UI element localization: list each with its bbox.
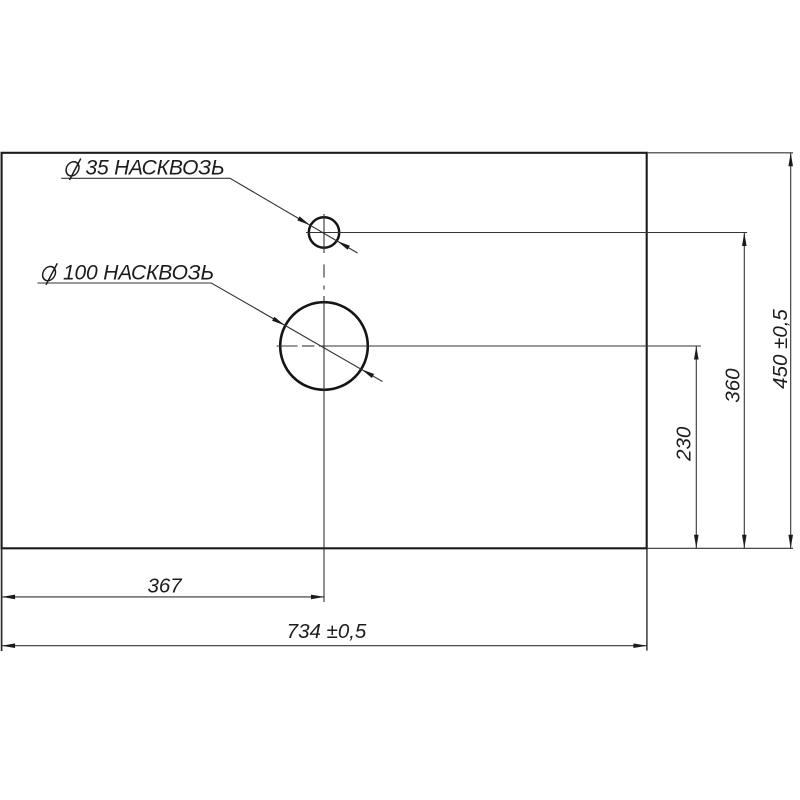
svg-text:35 НАСКВОЗЬ: 35 НАСКВОЗЬ: [86, 157, 225, 180]
svg-text:450 ±0,5: 450 ±0,5: [769, 309, 792, 389]
svg-text:734 ±0,5: 734 ±0,5: [287, 620, 367, 643]
svg-text:367: 367: [147, 574, 183, 597]
svg-text:100 НАСКВОЗЬ: 100 НАСКВОЗЬ: [63, 261, 214, 284]
svg-text:360: 360: [722, 368, 745, 403]
svg-text:230: 230: [673, 426, 696, 462]
